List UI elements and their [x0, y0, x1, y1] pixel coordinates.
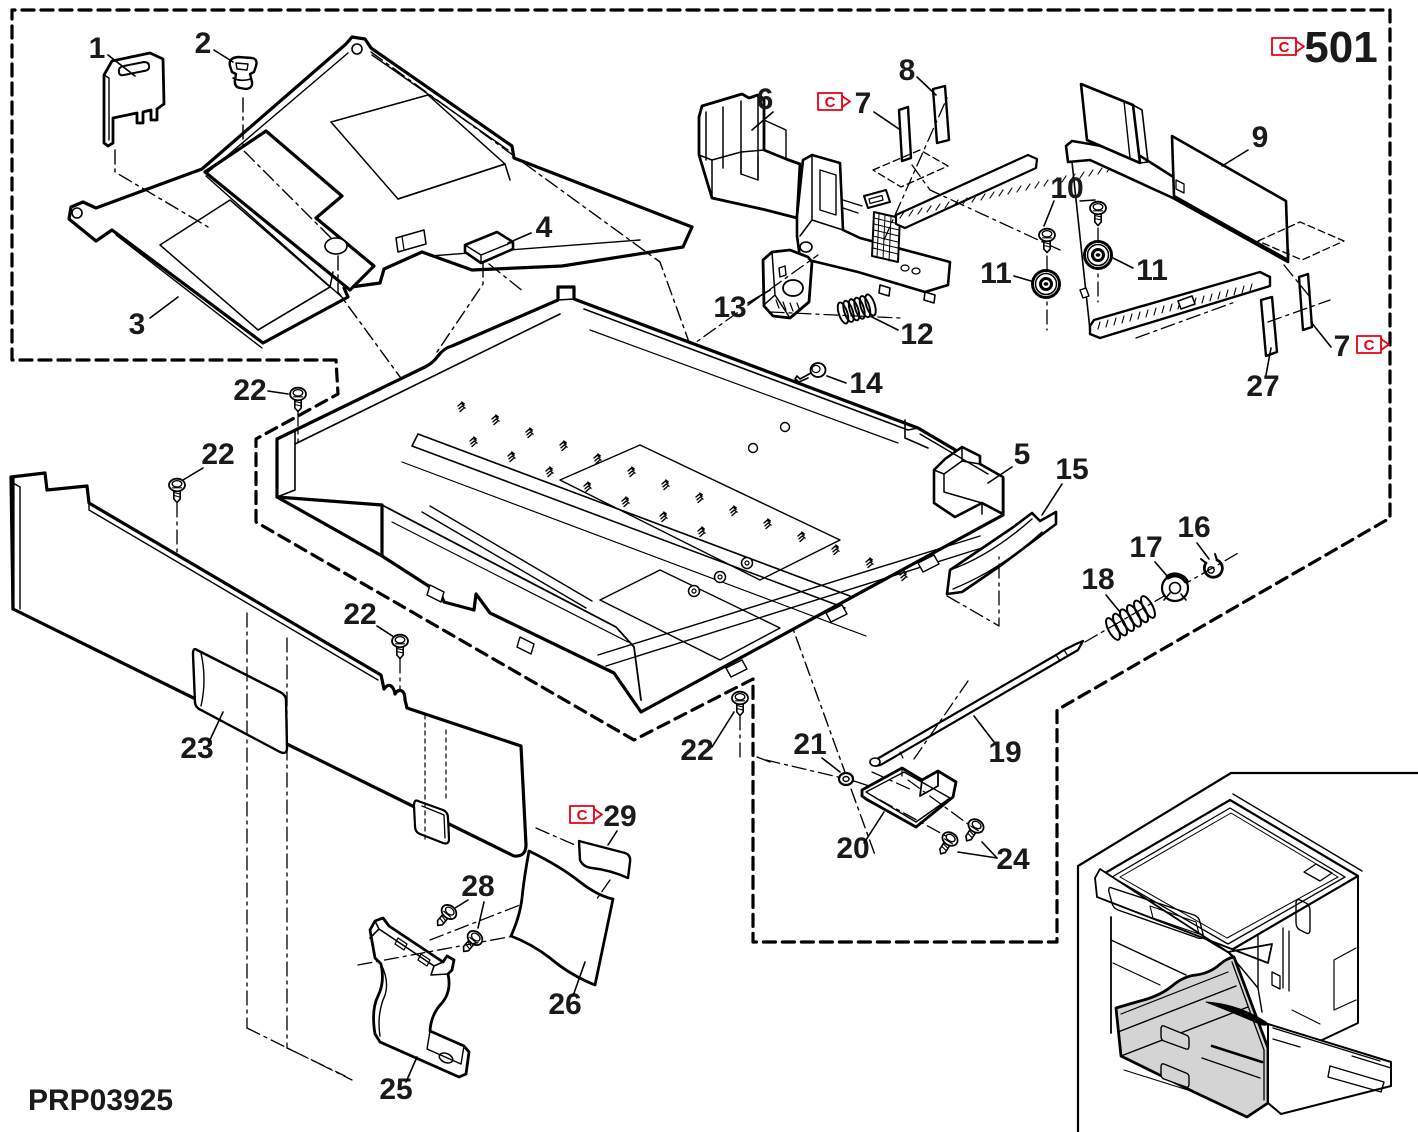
svg-text:11: 11 [980, 257, 1012, 290]
svg-text:16: 16 [1177, 511, 1210, 544]
svg-text:18: 18 [1081, 563, 1114, 596]
svg-text:C: C [577, 807, 588, 824]
svg-text:22: 22 [201, 438, 234, 471]
svg-text:501: 501 [1304, 23, 1377, 72]
svg-text:7: 7 [855, 87, 872, 120]
svg-text:8: 8 [899, 54, 916, 87]
svg-text:1: 1 [89, 32, 106, 65]
svg-text:27: 27 [1246, 370, 1279, 403]
svg-text:C: C [825, 94, 836, 111]
svg-text:C: C [1364, 337, 1375, 354]
svg-text:9: 9 [1252, 121, 1269, 154]
svg-text:23: 23 [180, 732, 213, 765]
svg-text:29: 29 [603, 800, 636, 833]
svg-text:28: 28 [461, 870, 494, 903]
svg-text:5: 5 [1014, 438, 1031, 471]
svg-text:24: 24 [996, 843, 1030, 876]
svg-text:13: 13 [713, 291, 746, 324]
svg-text:26: 26 [548, 988, 581, 1021]
svg-text:10: 10 [1050, 172, 1083, 205]
svg-text:3: 3 [129, 308, 146, 341]
svg-text:20: 20 [836, 832, 869, 865]
svg-text:15: 15 [1055, 453, 1088, 486]
svg-text:4: 4 [536, 211, 553, 244]
svg-text:22: 22 [680, 734, 713, 767]
svg-text:12: 12 [900, 318, 933, 351]
svg-text:22: 22 [233, 374, 266, 407]
svg-text:7: 7 [1334, 330, 1351, 363]
svg-text:21: 21 [793, 728, 826, 761]
svg-text:14: 14 [849, 367, 883, 400]
svg-text:C: C [1279, 39, 1290, 56]
svg-text:17: 17 [1129, 531, 1162, 564]
svg-text:22: 22 [343, 598, 376, 631]
svg-text:6: 6 [757, 83, 774, 116]
svg-text:2: 2 [195, 27, 212, 60]
svg-text:PRP03925: PRP03925 [28, 1084, 173, 1117]
svg-text:11: 11 [1136, 254, 1168, 287]
